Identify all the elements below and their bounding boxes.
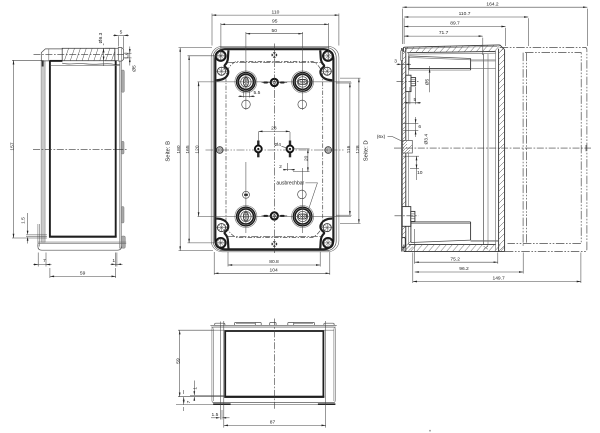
svg-text:95: 95 [272, 19, 278, 25]
svg-text:180: 180 [176, 145, 182, 153]
svg-text:157: 157 [9, 142, 15, 150]
svg-text:7: 7 [43, 258, 46, 264]
svg-text:ausbrechbar: ausbrechbar [276, 180, 304, 186]
svg-text:50: 50 [271, 28, 277, 34]
svg-text:110.7: 110.7 [459, 11, 471, 17]
svg-text:87: 87 [270, 420, 276, 426]
svg-text:164.2: 164.2 [486, 1, 499, 7]
svg-text:28: 28 [271, 125, 277, 131]
svg-text:Seite: D: Seite: D [364, 140, 370, 161]
svg-text:75.2: 75.2 [450, 256, 460, 262]
svg-text:Ø5: Ø5 [132, 65, 138, 72]
svg-text:Ø3.4: Ø3.4 [424, 134, 430, 145]
svg-text:165: 165 [185, 145, 191, 153]
svg-text:149.7: 149.7 [492, 276, 505, 282]
svg-text:71.7: 71.7 [439, 30, 449, 36]
svg-text:1.5: 1.5 [21, 217, 27, 224]
svg-text:10: 10 [417, 170, 423, 176]
svg-text:59: 59 [176, 358, 182, 364]
svg-text:59: 59 [80, 270, 86, 276]
svg-text:Ø8.3: Ø8.3 [98, 32, 104, 43]
svg-text:5: 5 [120, 29, 123, 35]
svg-text:Ø5: Ø5 [425, 78, 431, 85]
svg-text:(6x): (6x) [377, 134, 386, 140]
svg-text:7: 7 [186, 400, 192, 403]
svg-text:1: 1 [112, 258, 115, 264]
svg-text:120: 120 [194, 145, 200, 153]
svg-text:5.5: 5.5 [253, 90, 260, 96]
svg-text:Seite: B: Seite: B [166, 141, 172, 162]
svg-text:89.7: 89.7 [450, 21, 460, 27]
svg-text:80.8: 80.8 [269, 259, 279, 265]
svg-text:3: 3 [394, 59, 397, 65]
svg-text:116: 116 [346, 145, 352, 153]
svg-text:6: 6 [418, 124, 421, 130]
svg-text:2: 2 [279, 164, 282, 170]
svg-text:1.5: 1.5 [211, 412, 218, 418]
svg-text:110: 110 [272, 9, 280, 15]
svg-text:1: 1 [193, 387, 199, 390]
svg-text:128: 128 [355, 145, 361, 153]
svg-text:104: 104 [270, 267, 278, 273]
svg-text:20: 20 [304, 155, 310, 161]
svg-text:5: 5 [414, 97, 417, 103]
svg-text:Ø4: Ø4 [274, 142, 281, 148]
svg-text:96.2: 96.2 [459, 266, 469, 272]
